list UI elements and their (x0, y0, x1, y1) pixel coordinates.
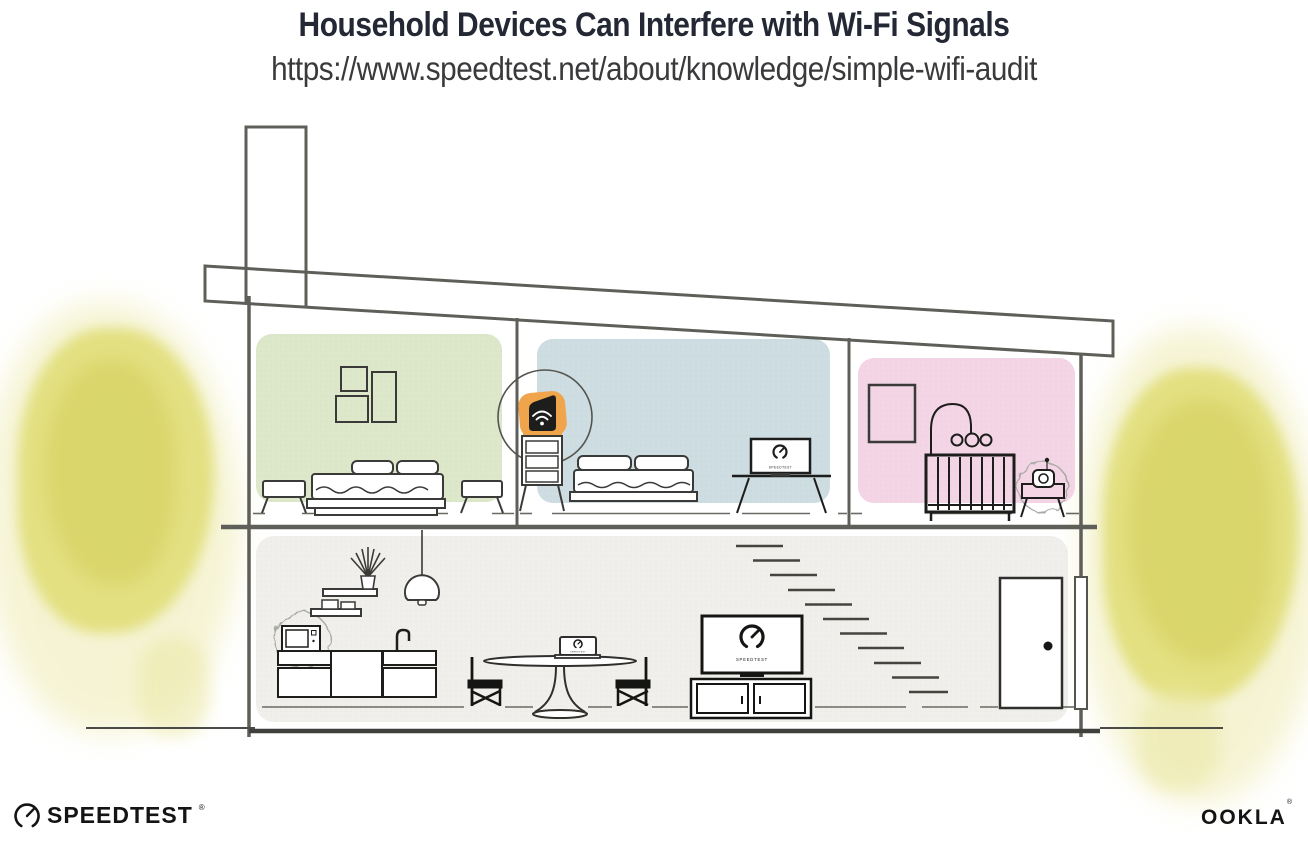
media-console (691, 679, 811, 718)
tv-living: SPEEDTEST (702, 616, 802, 677)
speedtest-logo: SPEEDTEST ® (14, 802, 205, 829)
laptop-base (555, 655, 600, 658)
speedtest-wordmark: SPEEDTEST (47, 802, 193, 829)
speedtest-gauge-icon (14, 802, 41, 829)
tv-bedroom-label: SPEEDTEST (769, 466, 792, 470)
shelf-lower (311, 609, 361, 616)
registered-mark: ® (199, 803, 205, 812)
house-cutaway-illustration: SPEEDTEST (0, 0, 1308, 861)
infographic-page: { "header": { "title": "Household Device… (0, 0, 1308, 861)
living-area: SPEEDTEST (691, 616, 811, 718)
door-knob (1044, 642, 1053, 651)
laptop: SPEEDTEST (555, 637, 600, 658)
entry (1000, 577, 1087, 709)
laptop-label: SPEEDTEST (570, 652, 586, 654)
cup (322, 600, 338, 609)
downspout-pipe (1075, 577, 1087, 709)
tv-bedroom: SPEEDTEST (751, 439, 810, 477)
tv-living-label: SPEEDTEST (736, 657, 768, 662)
ookla-wordmark: OOKLA (1201, 806, 1287, 829)
tv-base (740, 673, 764, 677)
nightstand-left (262, 481, 306, 513)
ookla-logo: OOKLA® (1201, 806, 1292, 830)
door (1000, 578, 1062, 708)
nightstand-right (461, 481, 503, 513)
microwave (282, 626, 320, 651)
tv-base (771, 473, 790, 477)
kitchen-cabinets (278, 651, 436, 697)
cup (341, 602, 355, 609)
registered-mark: ® (1287, 799, 1292, 806)
shelf-upper (323, 589, 377, 596)
